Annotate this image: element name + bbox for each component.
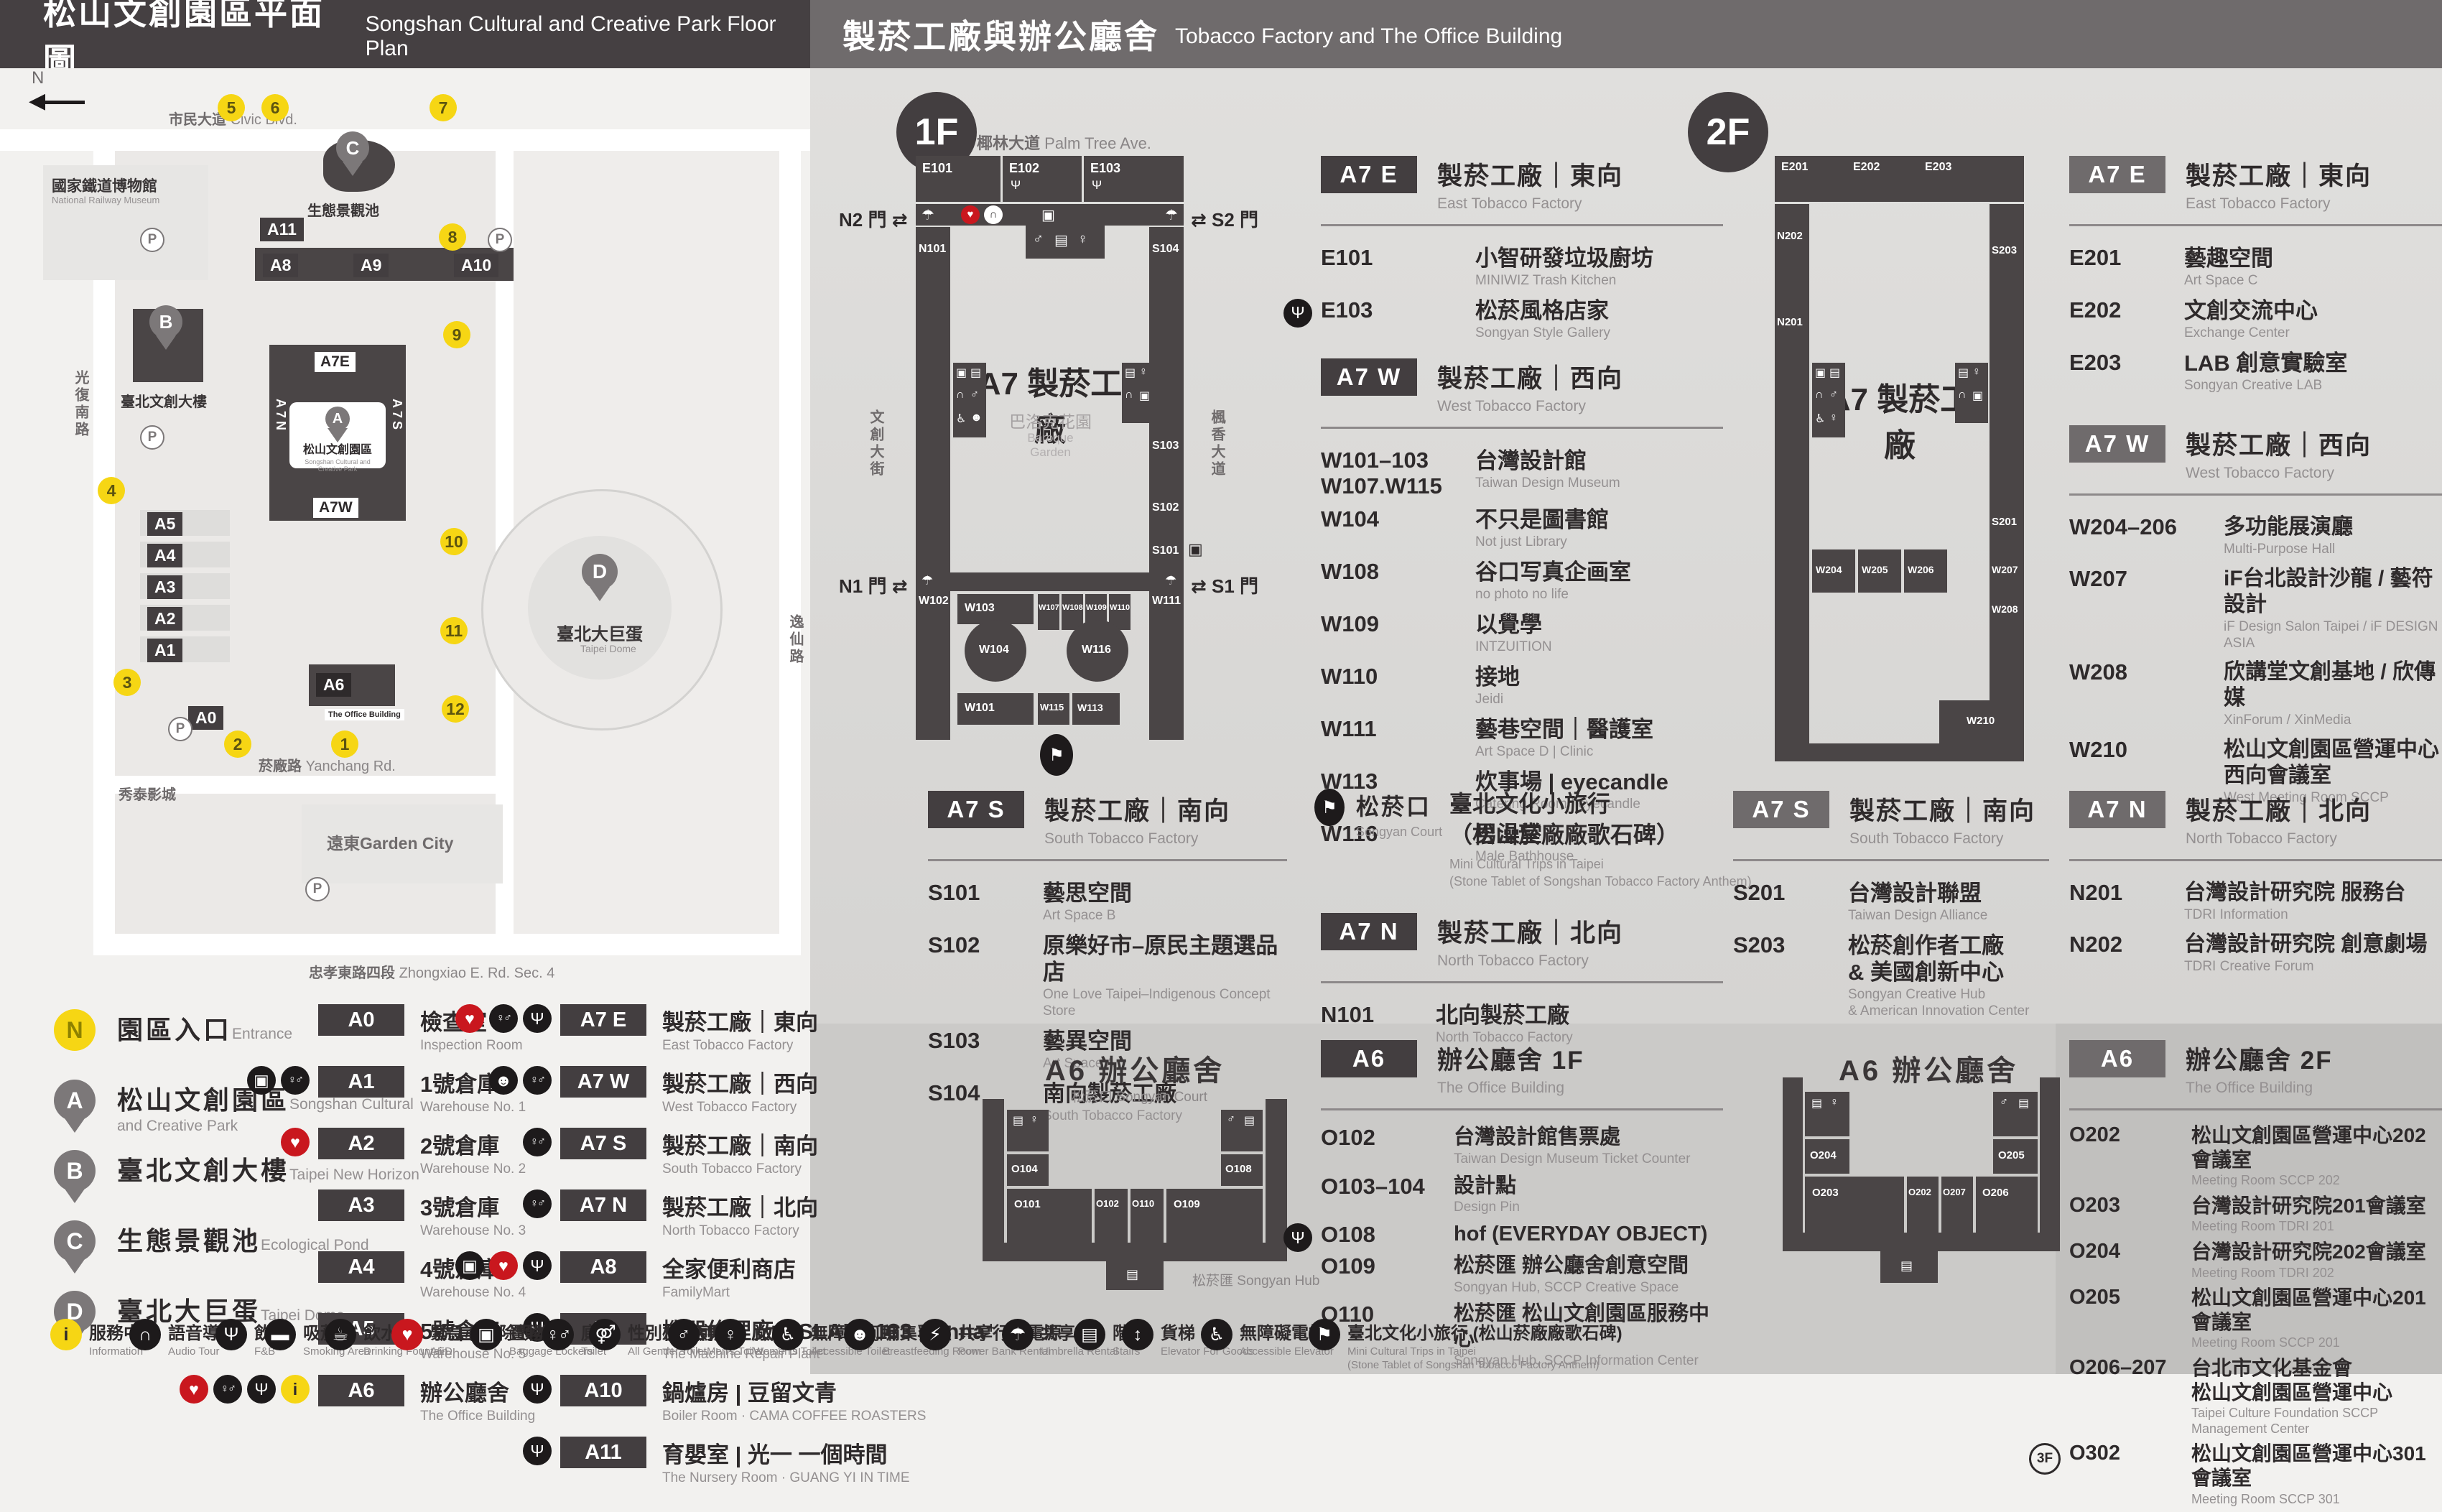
map-tag-a1: A1 — [147, 639, 182, 662]
aed-icon: ♥ — [489, 1251, 518, 1280]
room-id: E203 — [2069, 350, 2184, 394]
room-id: O103–104 — [1321, 1174, 1454, 1217]
legend-en: South Tobacco Factory — [662, 1161, 818, 1177]
section-a7n-1f: A7 N 製菸工廠｜北向North Tobacco Factory N101 北… — [1321, 913, 1723, 1054]
amenity-en: Mini Cultural Trips in Taipei (Stone Tab… — [1347, 1345, 1622, 1373]
room-en: Taiwan Design Alliance — [1848, 908, 1987, 924]
room-en: INTZUITION — [1475, 639, 1552, 656]
locker-icon: ▣ — [1188, 540, 1203, 559]
maple-ave-label: 楓香大道 — [1207, 409, 1227, 478]
legend-icons: ♥ — [205, 1128, 310, 1156]
restroom-icon: ♀♂ — [523, 1066, 552, 1095]
f1-n101-label: N101 — [919, 243, 946, 256]
map-tag-a7e: A7E — [315, 352, 356, 372]
locker-icon: ▣ — [1139, 389, 1150, 403]
restaurant-icon: Ψ — [523, 1004, 552, 1033]
f1-s103-label: S103 — [1152, 440, 1179, 453]
section-a7s-2f: A7 S 製菸工廠｜南向South Tobacco Factory S201 台… — [1733, 791, 2049, 1028]
map-tag-a0: A0 — [188, 706, 223, 730]
f1-w107-block — [1038, 594, 1059, 630]
stairs-icon: ▤ — [1126, 1267, 1138, 1282]
room-en: TDRI Information — [2184, 907, 2405, 924]
page-title-en: Songshan Cultural and Creative Park Floo… — [366, 12, 810, 61]
a6-1f-o108-label: O108 — [1225, 1163, 1252, 1175]
restaurant-icon: Ψ — [247, 1375, 276, 1404]
locker-icon: ▣ — [1972, 389, 1983, 403]
legend-icons: ♀♂ — [447, 1128, 552, 1156]
legend-en: Boiler Room · CAMA COFFEE ROASTERS — [662, 1409, 926, 1424]
road-top — [0, 129, 810, 151]
header-right: 製菸工廠與辦公廳舍 Tobacco Factory and The Office… — [810, 0, 2442, 68]
stop-6: 6 — [261, 94, 289, 121]
stop-11: 11 — [440, 617, 468, 644]
stairs-icon: ▤ — [1244, 1113, 1255, 1128]
stairs-icon: ▤ — [1811, 1096, 1822, 1110]
legend-row: ♀♂ A7 S 製菸工廠｜南向South Tobacco Factory — [447, 1128, 997, 1177]
smoke-icon: ▬ — [264, 1319, 296, 1350]
room-row: W104 不只是圖書館Not just Library — [1321, 506, 1723, 551]
restaurant-icon: Ψ — [523, 1251, 552, 1280]
nursing-icon: ☻ — [489, 1066, 518, 1095]
a6-2f-o203-label: O203 — [1812, 1187, 1839, 1199]
room-zh: 以覺學 — [1475, 611, 1552, 638]
room-zh: 不只是圖書館 — [1475, 506, 1609, 533]
parking-icon: P — [488, 228, 512, 252]
office-building-tag: The Office Building — [325, 709, 404, 720]
room-zh: 松菸風格店家 — [1475, 297, 1610, 324]
restroom-icon: ♀♂ — [542, 1319, 574, 1350]
stop-12: 12 — [442, 695, 469, 723]
restaurant-icon: Ψ — [1283, 1223, 1312, 1252]
legend-pin: A — [54, 1080, 96, 1121]
section-tag: A6 — [2069, 1040, 2165, 1077]
restaurant-icon: Ψ — [1283, 299, 1312, 328]
room-zh: 小智研發垃圾廚坊 — [1475, 245, 1653, 272]
room-zh: LAB 創意實驗室 — [2184, 350, 2347, 376]
f2-e201-label: E201 — [1781, 161, 1808, 174]
room-zh: hof (EVERYDAY OBJECT) — [1454, 1222, 1707, 1247]
room-en: Songyan Creative LAB — [2184, 378, 2347, 394]
room-en: Taiwan Design Museum — [1475, 476, 1620, 492]
legend-row: ♥♀♂Ψ A7 E 製菸工廠｜東向East Tobacco Factory — [447, 1004, 997, 1054]
restroom-icon: ♀♂ — [523, 1128, 552, 1156]
room-zh: 台灣設計研究院201會議室 — [2191, 1194, 2426, 1218]
room-row: O202 松山文創園區營運中心202會議室Meeting Room SCCP 2… — [2069, 1123, 2442, 1189]
nursing-icon: ☻ — [970, 412, 983, 425]
room-id: W111 — [1321, 716, 1475, 761]
floor-marker: 3F — [2029, 1443, 2061, 1475]
restroom-icon: ♂ — [1227, 1113, 1235, 1126]
audio-icon: ∩ — [984, 205, 1003, 224]
f1-w101-label: W101 — [965, 702, 995, 715]
room-id: S101 — [928, 880, 1043, 924]
a6-1f-o110 — [1131, 1189, 1164, 1243]
legend-tag: A8 — [560, 1251, 646, 1283]
restaurant-icon: Ψ — [523, 1437, 552, 1465]
map-tag-a7s: A7S — [389, 399, 404, 432]
map-tag-a10: A10 — [454, 254, 498, 277]
legend-en: The Nursery Room · GUANG YI IN TIME — [662, 1470, 910, 1486]
section-tag: A6 — [1321, 1040, 1417, 1077]
songyan-court-icon: ⚑ — [1314, 789, 1345, 826]
f1-left-wing — [916, 227, 950, 740]
legend-icons: Ψ — [447, 1375, 552, 1404]
room-row: W110 接地Jeidi — [1321, 664, 1723, 708]
a6-2f-o207 — [1941, 1177, 1973, 1233]
room-zh: 台灣設計館售票處 — [1454, 1125, 1690, 1150]
section-tag: A7 W — [2069, 425, 2165, 463]
stop-7: 7 — [430, 94, 457, 121]
legend-a7-items: ♥♀♂Ψ A7 E 製菸工廠｜東向East Tobacco Factory ☻♀… — [447, 1004, 997, 1498]
legend-zh: 製菸工廠｜南向 — [662, 1128, 818, 1160]
room-id: O203 — [2069, 1194, 2191, 1235]
section-tag: A7 N — [2069, 791, 2165, 828]
room-id: W109 — [1321, 611, 1475, 656]
f1-e102-label: E102 — [1009, 161, 1039, 176]
legend-tag: A0 — [318, 1004, 404, 1036]
room-id: O109 — [1321, 1253, 1454, 1297]
stop-8: 8 — [439, 223, 466, 251]
locker-icon: ▣ — [470, 1319, 502, 1350]
breastfeeding-icon: ☻ — [844, 1319, 876, 1350]
legend-tag: A7 N — [560, 1189, 646, 1221]
room-id: O302 — [2069, 1442, 2191, 1507]
room-en: Jeidi — [1475, 692, 1520, 708]
gate-n2: N2 門 ⇄ — [839, 205, 907, 232]
room-en: Songyan Hub, SCCP Creative Space — [1454, 1280, 1689, 1297]
legend-tag: A10 — [560, 1375, 646, 1406]
room-en: no photo no life — [1475, 587, 1631, 603]
room-zh: 欣講堂文創基地 / 欣傳媒 — [2224, 659, 2442, 711]
gate-n1: N1 門 ⇄ — [839, 572, 907, 598]
legend-tag: A3 — [318, 1189, 404, 1221]
stop-10: 10 — [440, 528, 468, 555]
park-info-box: A 松山文創園區 Songshan Cultural and Creative … — [289, 402, 386, 468]
room-zh: 設計點 — [1454, 1174, 1520, 1199]
legend-icons: ▣♀♂ — [205, 1066, 310, 1095]
legend-icons: ▣♥Ψ — [447, 1251, 552, 1280]
railway-museum-label-en: National Railway Museum — [52, 195, 159, 205]
aed-icon: ♥ — [180, 1375, 208, 1404]
f1-garden-label-en: Baroque Garden — [998, 431, 1102, 460]
a6-1f-o110-label: O110 — [1132, 1198, 1154, 1209]
aed-icon: ♥ — [281, 1128, 310, 1156]
section-tag: A7 N — [1321, 913, 1417, 950]
f2-n201-label: N201 — [1777, 316, 1803, 328]
accessible-icon: ♿ — [956, 412, 966, 426]
f2-e203-label: E203 — [1925, 161, 1951, 174]
room-en: Songyan Creative Hub & American Innovati… — [1848, 987, 2029, 1020]
legend-row: ☻♀♂ A7 W 製菸工廠｜西向West Tobacco Factory — [447, 1066, 997, 1116]
stairs-icon: ▤ — [1829, 366, 1840, 380]
parking-icon: P — [168, 717, 192, 741]
a6-2f-o205-label: O205 — [1998, 1149, 2025, 1161]
locker-icon: ▣ — [1041, 206, 1055, 224]
a6-1f-o104-label: O104 — [1011, 1163, 1038, 1175]
stairs-icon: ▤ — [2018, 1096, 2029, 1110]
f2-w208-label: W208 — [1992, 603, 2018, 615]
pin-b: B — [149, 305, 182, 338]
women-icon: ♀ — [715, 1319, 746, 1350]
section-title-en: Tobacco Factory and The Office Building — [1175, 24, 1562, 49]
a6-2f-left-arm — [1783, 1077, 1803, 1234]
room-id: N201 — [2069, 880, 2184, 924]
f1-w104-label: W104 — [979, 644, 1009, 657]
room-zh: 藝趣空間 — [2184, 245, 2273, 272]
room-row: N201 台灣設計研究院 服務台TDRI Information — [2069, 880, 2442, 924]
aed-icon: ♥ — [455, 1004, 484, 1033]
f2-left-wing — [1775, 204, 1809, 761]
f1-right-wing — [1149, 227, 1184, 740]
legend-icons: ♥♀♂Ψ — [447, 1004, 552, 1033]
locker-icon: ▣ — [956, 366, 967, 380]
section-a7e-2f: A7 E 製菸工廠｜東向East Tobacco Factory E201 藝趣… — [2069, 156, 2442, 402]
f2-w207-label: W207 — [1992, 564, 2018, 575]
room-id: W104 — [1321, 506, 1475, 551]
locker-icon: ▣ — [247, 1066, 276, 1095]
room-row: E201 藝趣空間Art Space C — [2069, 245, 2442, 289]
railway-museum-label: 國家鐵道博物館 — [52, 175, 157, 196]
stairs-icon: ▤ — [1900, 1258, 1913, 1274]
f2-w210-label: W210 — [1967, 715, 1995, 727]
legend-pin: N — [54, 1009, 96, 1051]
map-tag-a6: A6 — [316, 673, 351, 697]
street-yanchang: 菸廠路 Yanchang Rd. — [259, 754, 396, 775]
legend-zh: 製菸工廠｜西向 — [662, 1066, 818, 1098]
room-en: XinForum / XinMedia — [2224, 713, 2442, 729]
umbrella-icon: ☂ — [1165, 573, 1176, 588]
room-zh: 原樂好市–原民主題選品店 — [1043, 932, 1287, 985]
f1-w115-label: W115 — [1040, 702, 1064, 713]
room-zh: 松山文創園區營運中心 西向會議室 — [2224, 737, 2439, 789]
street-zhongxiao: 忠孝東路四段 Zhongxiao E. Rd. Sec. 4 — [309, 961, 554, 982]
a6-1f-o109-label: O109 — [1174, 1198, 1200, 1210]
room-zh: 松菸匯 辦公廳舍創意空間 — [1454, 1253, 1689, 1279]
accessible_elevator-icon: ♿ — [1201, 1319, 1232, 1350]
room-row: O109 松菸匯 辦公廳舍創意空間Songyan Hub, SCCP Creat… — [1321, 1253, 1723, 1297]
room-en: Meeting Room SCCP 202 — [2191, 1173, 2442, 1189]
map-tag-a9: A9 — [353, 254, 389, 277]
room-en: Art Space C — [2184, 273, 2273, 289]
parking-icon: P — [140, 228, 164, 252]
room-en: Art Space B — [1043, 908, 1132, 924]
goods_elevator-icon: ↕ — [1122, 1319, 1153, 1350]
power-icon: ⚡ — [919, 1319, 951, 1350]
restroom-icon: ♀ — [1972, 366, 1981, 379]
section-tag: A7 S — [928, 791, 1024, 828]
street-yixian: 逸仙路 — [785, 614, 806, 666]
men-icon: ♂ — [668, 1319, 700, 1350]
women-icon: ♀ — [1030, 1113, 1039, 1126]
palm-tree-ave-label: 椰林大道 Palm Tree Ave. — [977, 131, 1151, 154]
legend-en: West Tobacco Factory — [662, 1100, 818, 1116]
info-icon: i — [50, 1319, 82, 1350]
room-en: Meeting Room TDRI 202 — [2191, 1266, 2426, 1281]
map-tag-a2: A2 — [147, 607, 182, 631]
room-en: MINIWIZ Trash Kitchen — [1475, 273, 1653, 289]
f1-w103-label: W103 — [965, 602, 995, 615]
room-row: E203 LAB 創意實驗室Songyan Creative LAB — [2069, 350, 2442, 394]
a6-2f-o206 — [1976, 1177, 2038, 1233]
room-en: Exchange Center — [2184, 325, 2318, 342]
amenity-item: ⚑ 臺北文化小旅行 (松山菸廠廠歌石碑)Mini Cultural Trips … — [1309, 1319, 1622, 1373]
room-zh: 台灣設計聯盟 — [1848, 880, 1987, 906]
room-id: O204 — [2069, 1240, 2191, 1281]
pin-d: D — [582, 554, 618, 590]
f2-e202-label: E202 — [1853, 161, 1880, 174]
stop-4: 4 — [98, 477, 125, 504]
floor2-badge: 2F — [1688, 92, 1768, 172]
f1-w109-label: W109 — [1086, 603, 1107, 612]
info-icon: i — [281, 1375, 310, 1404]
gate-s2: ⇄ S2 門 — [1191, 205, 1258, 232]
f1-e103-label: E103 — [1090, 161, 1120, 176]
all_gender-icon: ⚤ — [589, 1319, 621, 1350]
room-zh: 文創交流中心 — [2184, 297, 2318, 324]
restroom-icon: ♂ — [1829, 389, 1838, 402]
women-icon: ♀ — [1830, 1096, 1839, 1109]
f1-w111-label: W111 — [1152, 595, 1181, 608]
street-guangfu: 光復南路 — [70, 370, 91, 439]
room-id: W207 — [2069, 566, 2224, 652]
a6-1f-right-arm — [1266, 1099, 1287, 1243]
restroom-icon: ♂ — [970, 389, 979, 402]
f1-s101-label: S101 — [1152, 544, 1179, 557]
room-id: O108 — [1321, 1222, 1454, 1248]
f2-w204-label: W204 — [1816, 564, 1842, 575]
legend-row: Ψ A10 鍋爐房 | 豆留文青Boiler Room · CAMA COFFE… — [447, 1375, 997, 1424]
dome-label: 臺北大巨蛋 — [557, 620, 643, 645]
songyan-court-icon: ⚑ — [1040, 734, 1073, 776]
restaurant-icon: Ψ — [215, 1319, 247, 1350]
room-row: O203 台灣設計研究院201會議室Meeting Room TDRI 201 — [2069, 1194, 2442, 1235]
legend-row: ▣♥Ψ A8 全家便利商店FamilyMart — [447, 1251, 997, 1301]
a6-2f-bottom-bar — [1783, 1233, 2060, 1251]
room-en: South Tobacco Factory — [1043, 1108, 1182, 1125]
room-zh: 松山文創園區營運中心301會議室 — [2191, 1442, 2442, 1490]
room-zh: 台灣設計研究院 創意劇場 — [2184, 932, 2427, 957]
park-map: 市民大道 Civic Blvd. 光復南路 菸廠路 Yanchang Rd. 忠… — [0, 68, 810, 1002]
room-id: E201 — [2069, 245, 2184, 289]
legend-zh: 鍋爐房 | 豆留文青 — [662, 1375, 926, 1407]
accessible-icon: ♿ — [1815, 412, 1825, 426]
room-row: W204–206 多功能展演廳Multi-Purpose Hall — [2069, 514, 2442, 558]
room-zh: iF台北設計沙龍 / 藝符設計 — [2224, 566, 2442, 618]
road-bottom — [93, 934, 801, 955]
stairs-icon: ▤ — [1074, 1319, 1105, 1350]
room-en: Not just Library — [1475, 534, 1609, 551]
room-row: O102 台灣設計館售票處Taiwan Design Museum Ticket… — [1321, 1125, 1723, 1168]
new-horizon-label: 臺北文創大樓 — [121, 390, 207, 411]
f2-w206-label: W206 — [1908, 564, 1934, 575]
fountain-icon: ☕ — [325, 1319, 356, 1350]
f2-s201-label: S201 — [1992, 516, 2017, 528]
room-id: W101–103 W107.W115 — [1321, 447, 1475, 498]
room-row: W208 欣講堂文創基地 / 欣傳媒XinForum / XinMedia — [2069, 659, 2442, 729]
restroom-icon: ♀♂ — [489, 1004, 518, 1033]
legend-en: North Tobacco Factory — [662, 1223, 818, 1239]
room-zh: 接地 — [1475, 664, 1520, 690]
a6-1f-o102-label: O102 — [1096, 1198, 1119, 1209]
room-zh: 台灣設計研究院202會議室 — [2191, 1240, 2426, 1264]
audio-icon: ∩ — [1125, 389, 1133, 402]
room-row: W111 藝巷空間｜醫護室Art Space D | Clinic — [1321, 716, 1723, 761]
legend-pin: B — [54, 1150, 96, 1192]
umbrella-icon: ☂ — [921, 573, 933, 588]
room-id: W108 — [1321, 559, 1475, 603]
room-en: iF Design Salon Taipei / iF DESIGN ASIA — [2224, 619, 2442, 652]
f2-n202-label: N202 — [1777, 230, 1803, 242]
women-icon: ♀ — [1829, 412, 1838, 425]
room-id: E202 — [2069, 297, 2184, 342]
a6-2f-o207-label: O207 — [1943, 1187, 1966, 1197]
court-sub: Mini Cultural Trips in Taipei (Stone Tab… — [1449, 856, 1752, 890]
room-row: W109 以覺學INTZUITION — [1321, 611, 1723, 656]
stairs-icon: ▤ — [1125, 366, 1136, 380]
a6-2f-o204-label: O204 — [1810, 1149, 1837, 1161]
a6-2f-o206-label: O206 — [1982, 1187, 2009, 1199]
audio-icon: ∩ — [1958, 389, 1967, 402]
room-row: O103–104 設計點Design Pin — [1321, 1174, 1723, 1217]
legend-tag: A11 — [560, 1437, 646, 1468]
f2-bottom-bar — [1775, 743, 2024, 761]
map-tag-a3: A3 — [147, 575, 182, 599]
f1-w113-label: W113 — [1077, 702, 1103, 713]
restaurant-icon: Ψ — [1011, 178, 1021, 193]
aed-icon: ♥ — [961, 205, 980, 224]
f2-right-wing — [1990, 204, 2024, 761]
room-en: Meeting Room SCCP 301 — [2191, 1492, 2442, 1508]
pin-a: A — [325, 407, 350, 431]
legend-pin: C — [54, 1220, 96, 1262]
a6-2f-map-title: A6 辦公廳舍 — [1839, 1047, 2018, 1089]
f1-w107-label: W107 — [1039, 603, 1059, 612]
room-en: Design Pin — [1454, 1200, 1520, 1216]
umbrella-icon: ☂ — [921, 206, 934, 224]
a6-2f-o202 — [1907, 1177, 1939, 1233]
room-en: Songyan Style Gallery — [1475, 325, 1610, 342]
room-en: TDRI Creative Forum — [2184, 959, 2427, 975]
stop-1: 1 — [331, 731, 358, 758]
legend-en: FamilyMart — [662, 1285, 796, 1301]
room-row: W101–103 W107.W115 台灣設計館Taiwan Design Mu… — [1321, 447, 1723, 498]
women-icon: ♀ — [1077, 231, 1088, 248]
f1-e101-label: E101 — [922, 161, 952, 176]
legend-tag: A2 — [318, 1128, 404, 1159]
north-arrow-icon: ◀ — [29, 88, 85, 113]
room-row: 3F O302 松山文創園區營運中心301會議室Meeting Room SCC… — [2069, 1442, 2442, 1507]
road-right — [779, 129, 801, 955]
room-id: E103 — [1321, 297, 1475, 342]
garden-city-label: 遠東Garden City — [327, 830, 453, 854]
header-left: 松山文創園區平面圖 Songshan Cultural and Creative… — [0, 0, 810, 68]
a6-1f-o109 — [1166, 1189, 1263, 1243]
cultural-blvd-label: 文創大街 — [865, 409, 886, 478]
section-tag: A7 S — [1733, 791, 1829, 828]
amenity-strip: i 服務中心Information ∩ 語音導覽Audio Tour Ψ 飲食F… — [0, 1313, 2442, 1374]
section-title-zh: 製菸工廠與辦公廳舍 — [842, 11, 1159, 58]
room-en: Multi-Purpose Hall — [2224, 542, 2353, 558]
stop-3: 3 — [113, 669, 141, 696]
f1-s102-label: S102 — [1152, 501, 1179, 514]
room-row: Ψ O108 hof (EVERYDAY OBJECT) — [1321, 1222, 1723, 1248]
room-zh: 谷口写真企画室 — [1475, 559, 1631, 585]
f1-s104-label: S104 — [1152, 243, 1179, 256]
legend-icons: ♀♂ — [447, 1189, 552, 1218]
room-zh: 台灣設計研究院 服務台 — [2184, 880, 2405, 906]
section-a7e-1f: A7 E 製菸工廠｜東向East Tobacco Factory E101 小智… — [1321, 156, 1723, 350]
room-row: W207 iF台北設計沙龍 / 藝符設計iF Design Salon Taip… — [2069, 566, 2442, 652]
